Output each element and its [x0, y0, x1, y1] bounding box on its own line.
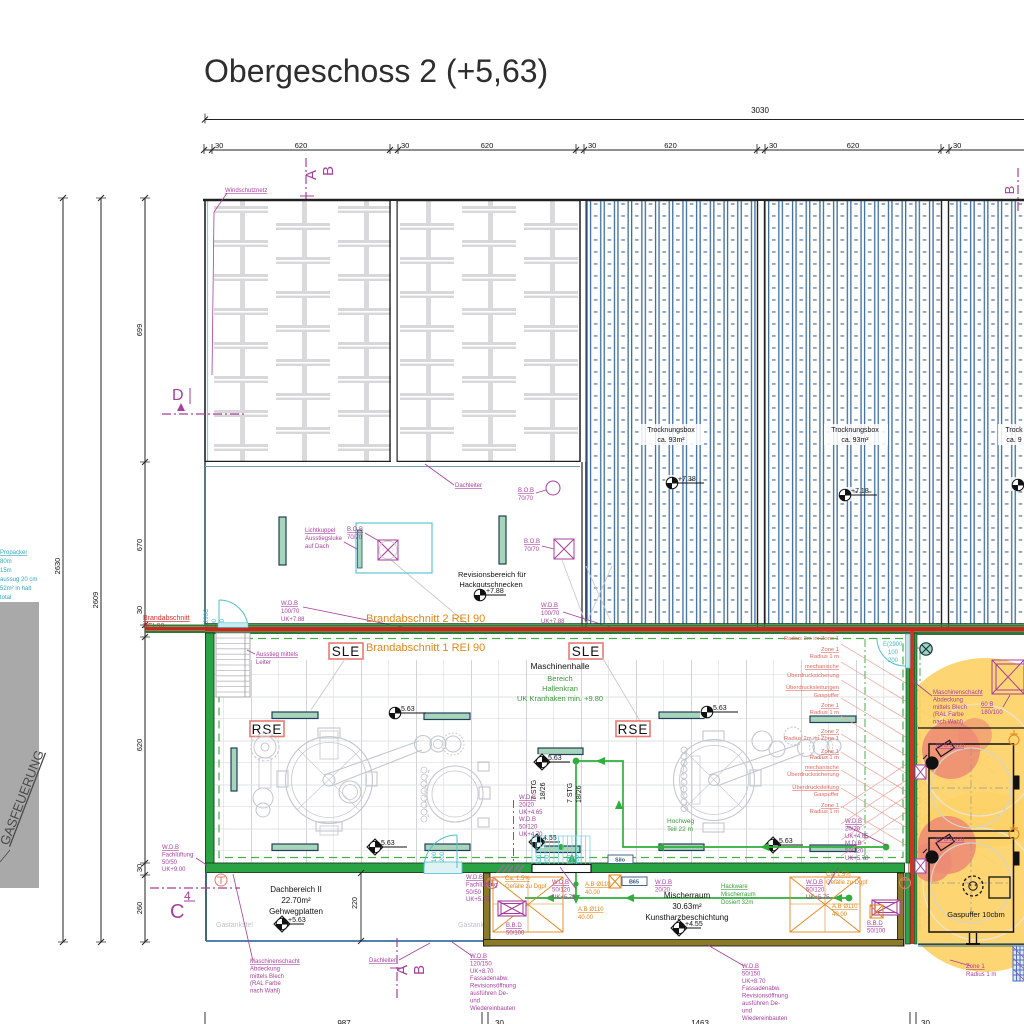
svg-text:30.63m²: 30.63m² [672, 902, 702, 911]
svg-text:50/120: 50/120 [519, 825, 538, 831]
svg-text:20/20: 20/20 [655, 887, 671, 893]
svg-text:W.D.B: W.D.B [552, 880, 569, 886]
svg-text:Fachlüftung: Fachlüftung [466, 882, 497, 888]
svg-text:100: 100 [888, 650, 899, 656]
svg-text:(RAL Farbe: (RAL Farbe [933, 712, 964, 718]
svg-text:Trocknungsbox: Trocknungsbox [647, 427, 695, 434]
svg-text:B.O.B: B.O.B [347, 527, 363, 533]
svg-text:W.D.B: W.D.B [519, 795, 536, 801]
svg-text:2630: 2630 [53, 558, 62, 575]
svg-text:40.00: 40.00 [585, 890, 601, 896]
svg-text:A: A [303, 170, 320, 180]
svg-text:620: 620 [135, 739, 144, 752]
svg-text:A.B Ø110: A.B Ø110 [585, 882, 611, 888]
svg-text:Teil 22 m: Teil 22 m [667, 826, 693, 833]
svg-text:C: C [170, 901, 184, 923]
svg-text:20/20: 20/20 [519, 802, 535, 808]
svg-text:18/26: 18/26 [540, 782, 547, 800]
svg-text:Gaspuffer: Gaspuffer [814, 792, 839, 798]
svg-text:UK+9.00: UK+9.00 [162, 867, 186, 873]
svg-text:15m: 15m [0, 568, 12, 574]
svg-text:Zone 1: Zone 1 [821, 703, 839, 709]
svg-text:Radius 1 m: Radius 1 m [810, 809, 839, 815]
svg-text:mittels Blech: mittels Blech [933, 705, 967, 711]
svg-text:Überdrucksicherung: Überdrucksicherung [787, 672, 839, 679]
svg-text:7 STG: 7 STG [567, 783, 574, 803]
svg-text:Radius 2m im Zone 1: Radius 2m im Zone 1 [784, 636, 839, 642]
svg-text:50/120: 50/120 [806, 887, 825, 893]
svg-text:Wiedereinbauten: Wiedereinbauten [742, 1016, 787, 1022]
svg-text:40.00: 40.00 [832, 912, 848, 918]
svg-text:nach Wahl): nach Wahl) [933, 720, 963, 726]
svg-text:620: 620 [847, 141, 860, 150]
svg-text:SLE: SLE [332, 644, 361, 659]
svg-text:Überdrucksleitung: Überdrucksleitung [792, 784, 839, 791]
svg-text:Ca. 1.5%: Ca. 1.5% [505, 876, 530, 882]
svg-text:+5.63: +5.63 [288, 917, 306, 924]
svg-text:Zone 1: Zone 1 [821, 647, 839, 653]
svg-text:18/26: 18/26 [576, 785, 583, 803]
svg-text:70/70: 70/70 [524, 547, 540, 553]
svg-text:200: 200 [440, 851, 446, 862]
svg-text:+4.55: +4.55 [685, 921, 703, 928]
svg-text:mittels Blech: mittels Blech [250, 974, 284, 980]
svg-text:5.63: 5.63 [401, 706, 415, 713]
svg-text:Brandabschnitt 2 REI 90: Brandabschnitt 2 REI 90 [366, 613, 485, 625]
svg-text:ausführen De-: ausführen De- [742, 1001, 780, 1007]
svg-text:Abdeckung: Abdeckung [933, 697, 963, 703]
svg-text:W.D.B: W.D.B [541, 603, 558, 609]
svg-text:100/70: 100/70 [281, 609, 300, 615]
svg-text:Mischerraum: Mischerraum [664, 891, 711, 900]
svg-text:30: 30 [135, 864, 144, 872]
svg-text:SLE: SLE [572, 644, 601, 659]
svg-text:Windschutznetz: Windschutznetz [225, 188, 267, 194]
svg-text:Lichtkuppel: Lichtkuppel [305, 528, 335, 534]
svg-text:UK Kranhaken min. +9.80: UK Kranhaken min. +9.80 [517, 694, 603, 703]
svg-text:987: 987 [337, 1019, 351, 1024]
svg-text:B: B [1002, 186, 1017, 195]
svg-text:Brandabschnitt: Brandabschnitt [143, 615, 190, 622]
svg-text:und: und [470, 998, 480, 1004]
svg-text:30: 30 [401, 141, 409, 150]
svg-text:100: 100 [537, 854, 543, 865]
svg-text:60 B 20/20: 60 B 20/20 [936, 837, 964, 843]
svg-text:620: 620 [481, 141, 494, 150]
svg-text:5.63: 5.63 [548, 755, 562, 762]
svg-text:Gaspuffer: Gaspuffer [814, 693, 839, 699]
svg-text:W.D.B: W.D.B [470, 954, 487, 960]
svg-text:100: 100 [432, 851, 438, 862]
svg-text:auf Dach: auf Dach [305, 544, 329, 550]
svg-text:Mischerraum: Mischerraum [721, 892, 756, 898]
svg-text:Hackware: Hackware [721, 884, 748, 890]
svg-text:30: 30 [495, 1019, 504, 1024]
svg-text:50/150: 50/150 [742, 971, 761, 977]
svg-text:total: total [0, 595, 11, 601]
svg-text:60 B 20/20: 60 B 20/20 [936, 743, 964, 749]
svg-text:W.D.B: W.D.B [655, 880, 672, 886]
svg-text:REI 90: REI 90 [143, 623, 165, 630]
svg-text:70/70: 70/70 [347, 535, 363, 541]
svg-text:Leiter: Leiter [256, 660, 271, 666]
svg-text:W.D.B: W.D.B [281, 601, 298, 607]
svg-text:100: 100 [567, 854, 573, 865]
svg-text:200: 200 [545, 854, 551, 865]
svg-text:Ausstieg mittels: Ausstieg mittels [256, 652, 298, 658]
svg-text:B.B.D: B.B.D [506, 923, 522, 929]
svg-text:50/120: 50/120 [552, 887, 571, 893]
svg-text:aussug 20 cm: aussug 20 cm [0, 577, 37, 583]
svg-text:1463: 1463 [691, 1019, 709, 1024]
svg-text:mechanische: mechanische [805, 765, 839, 771]
svg-text:Maschinenhalle: Maschinenhalle [530, 661, 589, 671]
svg-text:W.D.B: W.D.B [742, 964, 759, 970]
svg-text:ausführen De-: ausführen De- [470, 991, 508, 997]
svg-text:Wiedereinbauten: Wiedereinbauten [470, 1006, 515, 1012]
svg-text:699: 699 [135, 324, 144, 337]
svg-text:D: D [172, 387, 184, 404]
svg-text:120/150: 120/150 [470, 961, 492, 967]
svg-text:50/50: 50/50 [466, 890, 482, 896]
svg-text:+7.18: +7.18 [851, 488, 869, 495]
svg-text:30: 30 [135, 606, 144, 614]
svg-text:50/120: 50/120 [845, 849, 864, 855]
svg-text:nach Wahl): nach Wahl) [250, 989, 280, 995]
svg-text:70/70: 70/70 [518, 496, 534, 502]
svg-text:Gastank: Gastank [458, 922, 485, 929]
svg-text:Gefälle zu Dgpf: Gefälle zu Dgpf [505, 884, 547, 890]
svg-text:KLIMA: KLIMA [818, 629, 835, 635]
svg-text:30: 30 [921, 1019, 930, 1024]
svg-text:Trock: Trock [1005, 427, 1023, 434]
svg-text:Ca. 1.5%: Ca. 1.5% [826, 872, 851, 878]
svg-text:ca. 93m²: ca. 93m² [657, 437, 685, 444]
svg-text:30: 30 [953, 141, 961, 150]
svg-text:Trocknungsbox: Trocknungsbox [831, 427, 879, 434]
svg-text:UK+5.70: UK+5.70 [845, 856, 869, 862]
svg-text:Fachlüftung: Fachlüftung [162, 852, 193, 858]
svg-text:Dachleiter: Dachleiter [369, 958, 396, 964]
svg-text:Gaspuffer 10cbm: Gaspuffer 10cbm [947, 910, 1004, 919]
svg-text:UK+5.75: UK+5.75 [806, 895, 830, 901]
svg-text:620: 620 [295, 141, 308, 150]
svg-text:UK+4.65: UK+4.65 [519, 810, 543, 816]
svg-text:260: 260 [135, 902, 144, 915]
svg-text:A: A [394, 965, 411, 975]
svg-text:Bereich: Bereich [547, 674, 572, 683]
svg-text:5.63: 5.63 [779, 838, 793, 845]
svg-text:Dachleiter: Dachleiter [455, 483, 482, 489]
svg-text:Überdrucksleitungen: Überdrucksleitungen [786, 684, 839, 691]
svg-text:Radius 1 m: Radius 1 m [810, 755, 839, 761]
svg-text:100/70: 100/70 [541, 611, 560, 617]
svg-text:RSE: RSE [618, 722, 649, 737]
svg-text:UK+8.70: UK+8.70 [742, 979, 766, 985]
svg-text:620: 620 [664, 141, 677, 150]
svg-text:Revisionsbereich für: Revisionsbereich für [458, 570, 526, 579]
svg-text:UK+5.75: UK+5.75 [466, 897, 490, 903]
svg-text:Propacker: Propacker [0, 550, 27, 556]
svg-text:UK+4.70: UK+4.70 [519, 832, 543, 838]
svg-text:Abdeckung: Abdeckung [250, 966, 280, 972]
svg-text:B.B.D: B.B.D [867, 921, 883, 927]
svg-text:W.D.B: W.D.B [519, 817, 536, 823]
svg-text:A.B Ø110: A.B Ø110 [578, 907, 604, 913]
svg-text:Radius 1 m: Radius 1 m [810, 710, 839, 716]
svg-text:B: B [320, 166, 337, 176]
svg-text:180/100: 180/100 [981, 710, 1003, 716]
svg-text:Zone 2: Zone 2 [821, 729, 839, 735]
svg-text:A.B Ø110: A.B Ø110 [832, 904, 858, 910]
svg-text:5.63: 5.63 [713, 705, 727, 712]
svg-text:50/100: 50/100 [506, 930, 525, 936]
svg-text:Zone 1: Zone 1 [966, 964, 985, 970]
svg-text:80m: 80m [0, 559, 12, 565]
svg-text:W.D.B: W.D.B [845, 819, 862, 825]
svg-text:Radius 1 m: Radius 1 m [810, 654, 839, 660]
svg-text:30: 30 [215, 141, 223, 150]
svg-text:mechanische: mechanische [805, 664, 839, 670]
svg-text:Obergeschoss 2 (+5,63): Obergeschoss 2 (+5,63) [204, 53, 548, 89]
svg-text:2609: 2609 [91, 592, 100, 609]
svg-text:M.D.B: M.D.B [845, 841, 862, 847]
svg-text:Maschinenschacht: Maschinenschacht [933, 690, 983, 696]
svg-text:E(2900: E(2900 [883, 642, 903, 648]
svg-text:Fassadenabw.: Fassadenabw. [470, 976, 509, 982]
svg-text:Fassadenabw.: Fassadenabw. [742, 986, 781, 992]
svg-text:B.O.B: B.O.B [518, 488, 534, 494]
svg-text:UK+5.75: UK+5.75 [552, 895, 576, 901]
svg-text:RSE: RSE [252, 722, 283, 737]
svg-text:UK+7.88: UK+7.88 [541, 619, 565, 625]
svg-text:5.63: 5.63 [381, 840, 395, 847]
svg-text:ca. 9: ca. 9 [1006, 437, 1021, 444]
svg-text:Brandabschnitt 1 REI 90: Brandabschnitt 1 REI 90 [366, 642, 485, 654]
svg-text:3030: 3030 [751, 106, 769, 115]
svg-text:Ausstiegsluke: Ausstiegsluke [305, 536, 343, 542]
svg-text:Radius 2m im Zone 1: Radius 2m im Zone 1 [784, 736, 839, 742]
svg-text:B65: B65 [629, 880, 639, 886]
svg-text:30: 30 [769, 141, 777, 150]
svg-text:Gastankstel: Gastankstel [216, 922, 253, 929]
svg-text:W.D.B: W.D.B [162, 845, 179, 851]
svg-text:ca. 93m²: ca. 93m² [841, 437, 869, 444]
svg-text:Hallenkran: Hallenkran [542, 684, 578, 693]
svg-text:+7.88: +7.88 [486, 588, 504, 595]
svg-text:W.D.B: W.D.B [466, 875, 483, 881]
svg-text:Dosiert 32m: Dosiert 32m [721, 900, 753, 906]
svg-text:+7.38: +7.38 [678, 476, 696, 483]
svg-text:Gehwegplatten: Gehwegplatten [269, 907, 323, 916]
svg-text:UK+7.88: UK+7.88 [281, 617, 305, 623]
svg-text:50/50: 50/50 [162, 860, 178, 866]
svg-text:Hochweg: Hochweg [667, 818, 694, 825]
svg-text:Überdrucksicherung: Überdrucksicherung [787, 771, 839, 778]
svg-text:Revisionsöffnung: Revisionsöffnung [470, 984, 516, 990]
svg-text:und: und [742, 1008, 752, 1014]
svg-text:670: 670 [135, 539, 144, 552]
svg-text:W.D.B: W.D.B [806, 880, 823, 886]
svg-text:Maschinenschacht: Maschinenschacht [250, 959, 300, 965]
svg-text:22.70m²: 22.70m² [281, 896, 311, 905]
svg-text:220: 220 [352, 897, 359, 909]
svg-text:40.00: 40.00 [578, 915, 594, 921]
svg-text:B.O.B: B.O.B [524, 539, 540, 545]
svg-text:30: 30 [588, 141, 596, 150]
svg-text:200: 200 [575, 854, 581, 865]
svg-text:Radius 1 m: Radius 1 m [966, 972, 996, 978]
svg-text:Dachbereich II: Dachbereich II [270, 885, 322, 894]
svg-text:Silo: Silo [615, 858, 626, 864]
svg-text:200: 200 [888, 658, 899, 664]
svg-text:50/100: 50/100 [867, 928, 886, 934]
svg-text:60 B: 60 B [981, 702, 993, 708]
svg-text:52m² in halt: 52m² in halt [0, 586, 32, 592]
svg-text:UK+8.70: UK+8.70 [470, 969, 494, 975]
svg-text:(RAL Farbe: (RAL Farbe [250, 981, 281, 987]
svg-text:Gefälle zu Dgpf: Gefälle zu Dgpf [826, 880, 868, 886]
svg-text:B: B [411, 965, 428, 975]
svg-text:Revisionsöffnung: Revisionsöffnung [742, 994, 788, 1000]
